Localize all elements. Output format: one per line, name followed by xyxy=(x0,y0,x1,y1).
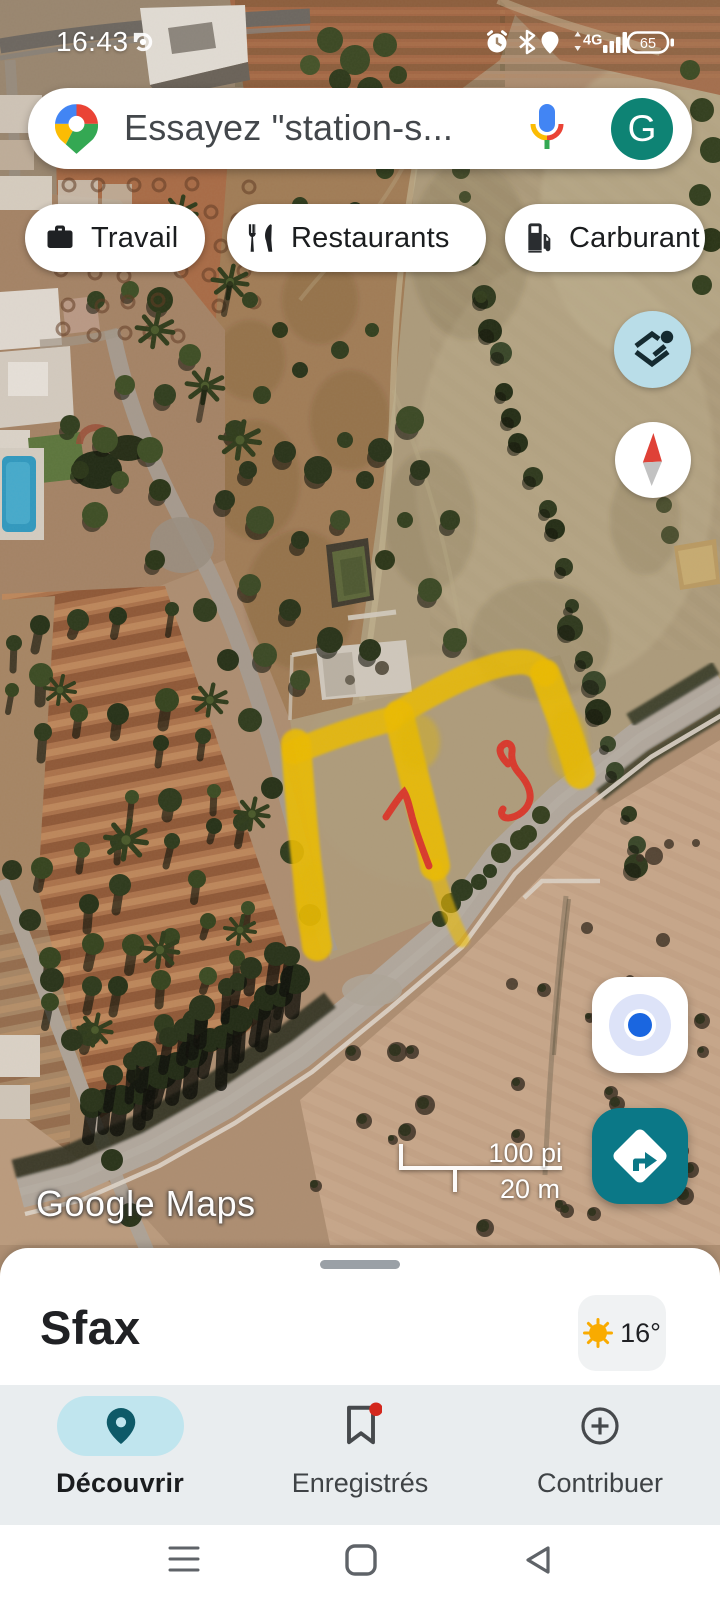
svg-text:65: 65 xyxy=(640,36,656,52)
svg-text:4G: 4G xyxy=(583,33,602,49)
